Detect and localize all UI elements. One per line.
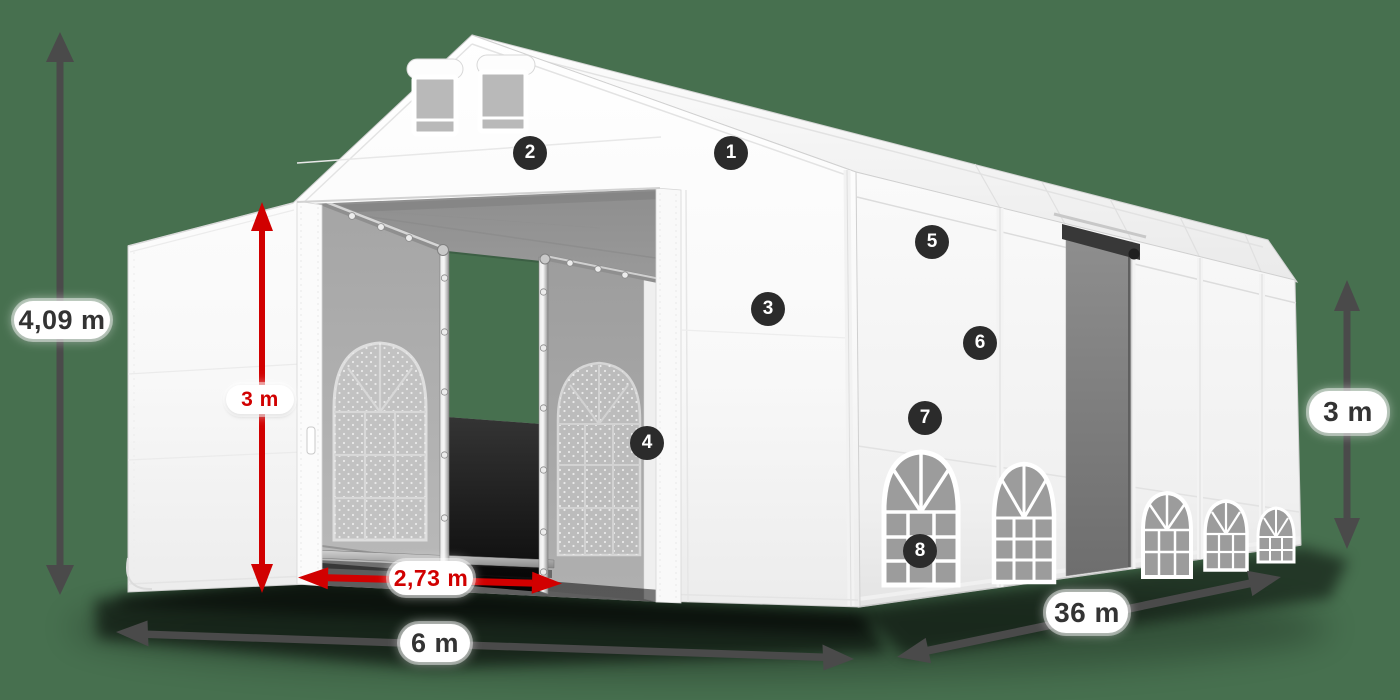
door-handle — [307, 427, 315, 454]
side-height-label: 3 m — [1309, 391, 1387, 433]
door-panel-left — [322, 203, 441, 562]
doorway-interior — [310, 189, 660, 602]
side-window-5 — [1258, 508, 1294, 562]
side-length-label: 36 m — [1046, 592, 1128, 633]
open-rear-view — [447, 252, 541, 424]
callout-badge-4: 4 — [630, 426, 664, 460]
callout-badge-3: 3 — [751, 292, 785, 326]
door-height-label: 3 m — [226, 385, 294, 414]
front-width-label: 6 m — [400, 624, 470, 662]
callout-badge-6: 6 — [963, 326, 997, 360]
callout-badge-2: 2 — [513, 136, 547, 170]
tent-illustration-svg — [0, 0, 1400, 700]
callout-badge-1: 1 — [714, 136, 748, 170]
side-window-3 — [1143, 493, 1191, 577]
door-width-label: 2,73 m — [389, 561, 473, 595]
callout-badge-8: 8 — [903, 534, 937, 568]
product-illustration: 4,09 m 3 m 2,73 m 6 m 36 m 3 m 1 2 3 4 5… — [0, 0, 1400, 700]
callout-badge-5: 5 — [915, 225, 949, 259]
total-height-label: 4,09 m — [14, 301, 110, 339]
callout-badge-7: 7 — [908, 401, 942, 435]
side-window-4 — [1205, 501, 1247, 570]
side-window-2 — [994, 464, 1054, 582]
